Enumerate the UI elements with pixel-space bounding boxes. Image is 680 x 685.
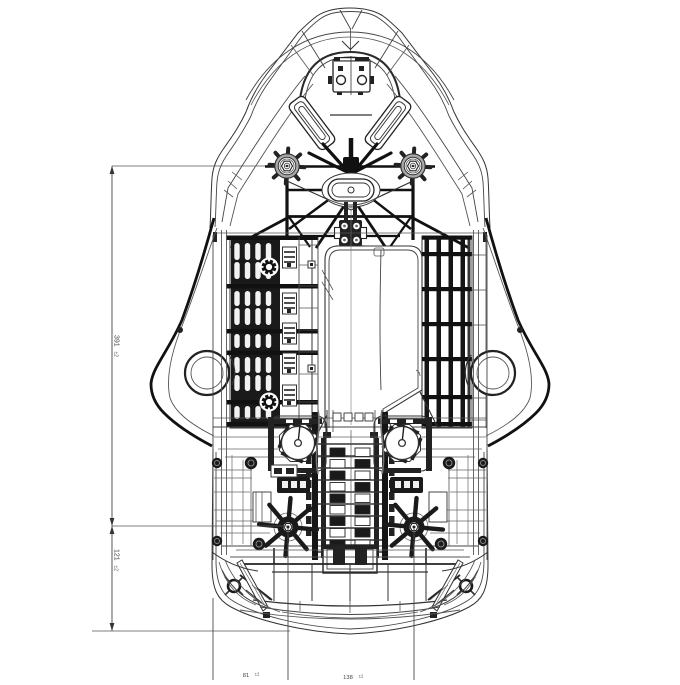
svg-text:±2: ±2 [359, 674, 364, 679]
svg-text:81: 81 [243, 673, 249, 679]
svg-text:±2: ±2 [113, 566, 119, 572]
svg-text:138: 138 [343, 675, 353, 680]
svg-text:121: 121 [113, 549, 120, 561]
svg-text:391: 391 [113, 335, 120, 347]
svg-text:±2: ±2 [113, 352, 119, 358]
svg-text:±2: ±2 [255, 672, 260, 677]
